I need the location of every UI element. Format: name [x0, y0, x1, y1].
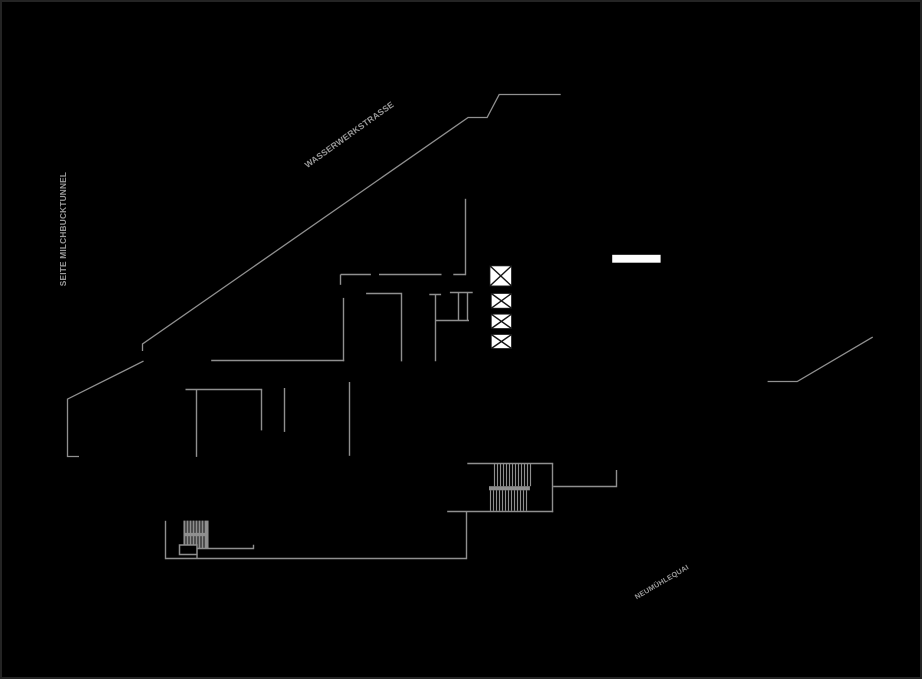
svg-text:SEITE MILCHBUCKTUNNEL: SEITE MILCHBUCKTUNNEL	[58, 172, 68, 286]
